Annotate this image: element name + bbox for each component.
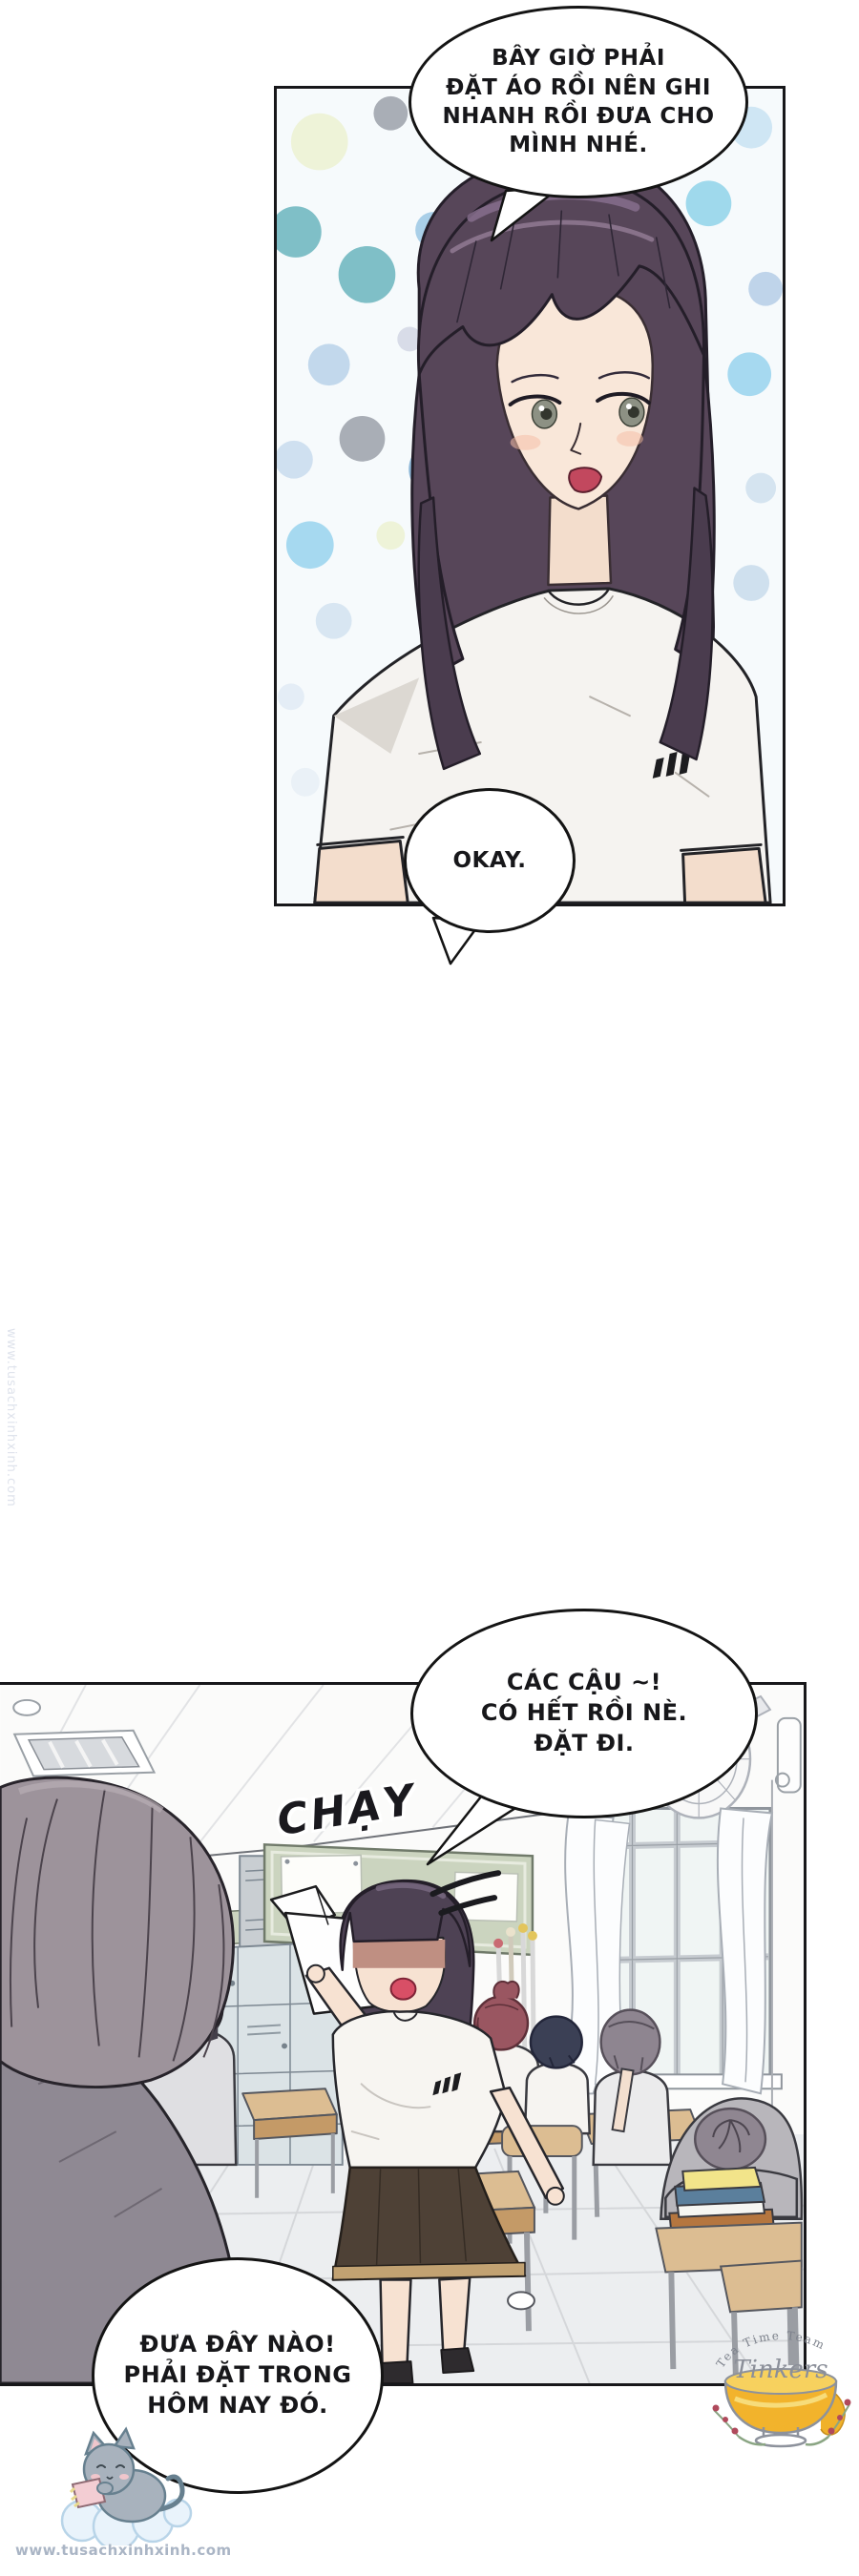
skirt-hem: [333, 2263, 525, 2280]
ceiling-light: [14, 1731, 154, 1776]
speech-bubble-2: OKAY.: [404, 788, 576, 933]
stamp-script-text: Tinkers: [733, 2356, 828, 2384]
side-watermark: www.tusachxinhxinh.com: [4, 1328, 18, 1507]
left-arm: [315, 841, 408, 903]
girl-torso: [333, 2011, 506, 2168]
smoke-detector: [13, 1700, 40, 1715]
speech-bubble-3: CÁC CẬU ~! CÓ HẾT RỒI NÈ. ĐẶT ĐI.: [410, 1609, 758, 1818]
bubble2-text: OKAY.: [452, 846, 526, 875]
right-arm: [683, 848, 766, 903]
bubble3-text: CÁC CẬU ~! CÓ HẾT RỒI NÈ. ĐẶT ĐI.: [481, 1668, 687, 1758]
tea-time-stamp: Tea Time Team Tinkers: [706, 2286, 857, 2458]
girl-mouth: [391, 1979, 416, 2000]
bubble4-text: ĐƯA ĐÂY NÀO! PHẢI ĐẶT TRONG HÔM NAY ĐÓ.: [124, 2330, 352, 2420]
bottom-watermark: www.tusachxinhxinh.com: [15, 2542, 225, 2559]
bubble1-text: BÂY GIỜ PHẢI ĐẶT ÁO RỒI NÊN GHI NHANH RỒ…: [442, 44, 714, 159]
comic-page: BÂY GIỜ PHẢI ĐẶT ÁO RỒI NÊN GHI NHANH RỒ…: [0, 0, 859, 2576]
book-stack: [669, 2168, 774, 2233]
cat-mascot: [36, 2425, 200, 2545]
student-navy-hair: [525, 2017, 590, 2133]
student-chin-on-hand: [594, 2010, 672, 2165]
speech-bubble-1: BÂY GIỜ PHẢI ĐẶT ÁO RỒI NÊN GHI NHANH RỒ…: [409, 6, 748, 198]
